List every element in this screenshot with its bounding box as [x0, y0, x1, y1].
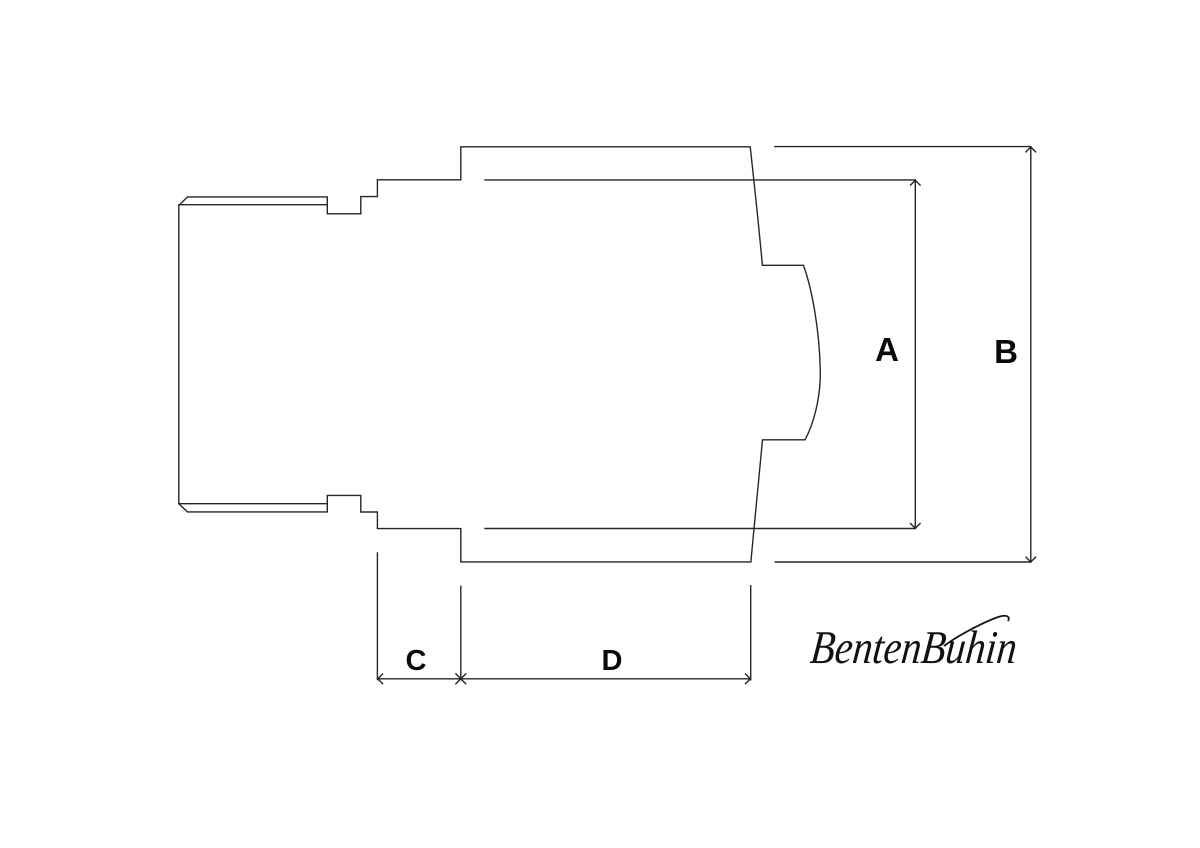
svg-text:A: A — [875, 331, 899, 368]
svg-text:D: D — [602, 645, 623, 677]
svg-text:BentenBuhin: BentenBuhin — [808, 622, 1019, 674]
svg-text:B: B — [994, 333, 1018, 370]
svg-text:C: C — [406, 645, 427, 677]
